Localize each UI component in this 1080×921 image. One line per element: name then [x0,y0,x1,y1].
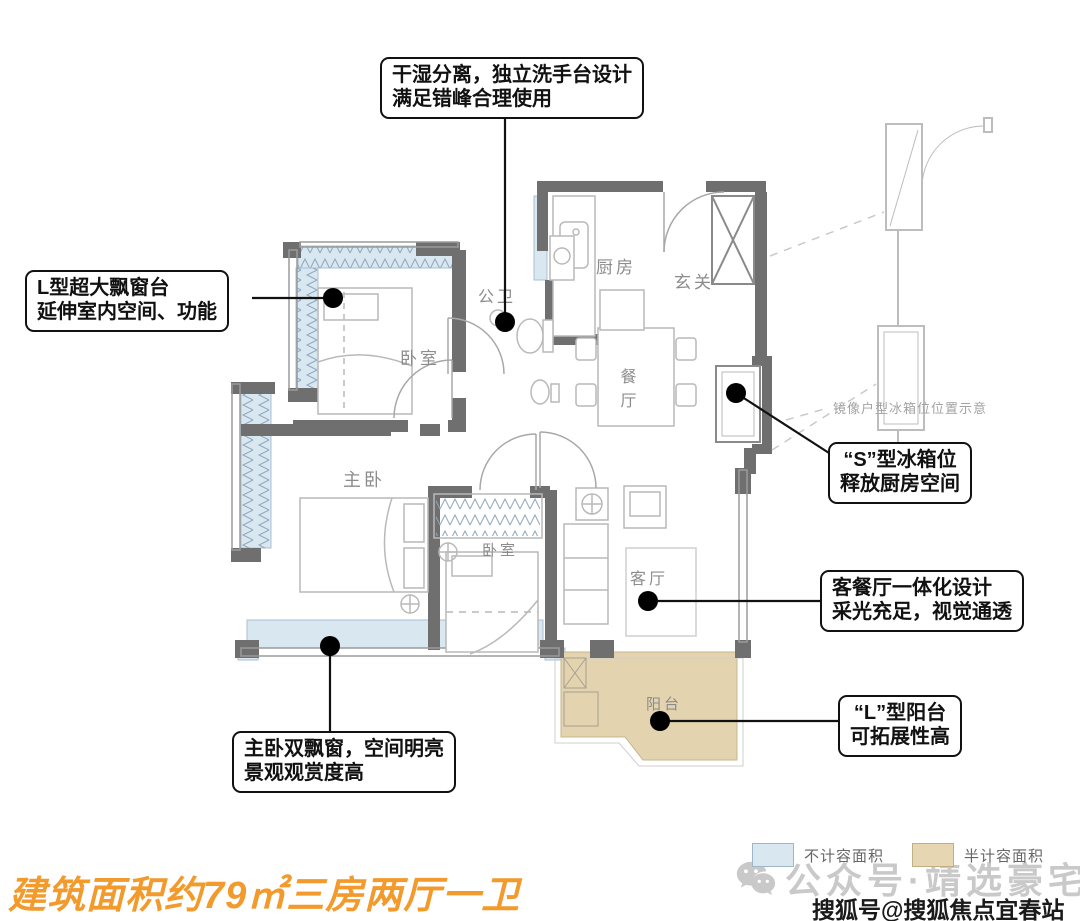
callout-washroom-line1: 干湿分离，独立洗手台设计 [392,63,632,87]
callout-balcony-line2: 可拓展性高 [850,725,950,749]
living-furniture [564,486,696,636]
room-label-living: 客厅 [630,570,668,588]
legend-item-non-countable: 不计容面积 [752,843,884,867]
room-label-kitchen: 厨房 [596,258,636,277]
room-label-master: 主卧 [343,470,385,490]
master-furniture [300,498,428,613]
room-label-foyer: 玄关 [674,273,714,292]
legend-swatch-non-countable [752,843,794,867]
callout-balcony: “L”型阳台 可拓展性高 [838,695,962,757]
callout-master-bay-line1: 主卧双飘窗，空间明亮 [244,737,444,761]
callout-living-dining: 客餐厅一体化设计 采光充足，视觉通透 [820,570,1024,632]
bedroom2-furniture [434,494,542,654]
legend-swatch-half-countable [912,843,954,867]
callout-fridge-line2: 释放厨房空间 [840,472,960,496]
shaft-box [712,196,754,284]
callout-washroom-line2: 满足错峰合理使用 [392,87,632,111]
room-label-bedroom1: 卧室 [400,349,440,368]
legend-label-half-countable: 半计容面积 [964,845,1044,866]
callout-fridge-line1: “S”型冰箱位 [840,448,960,472]
room-label-bathroom: 公卫 [478,289,516,306]
callout-master-bay-line2: 景观观赏度高 [244,761,444,785]
callout-master-bay: 主卧双飘窗，空间明亮 景观观赏度高 [232,731,456,793]
legend-item-half-countable: 半计容面积 [912,843,1044,867]
callout-washroom: 干湿分离，独立洗手台设计 满足错峰合理使用 [380,57,644,119]
sohu-watermark: 搜狐号@搜狐焦点宜春站 [812,891,1064,921]
callout-bay-window-line1: L型超大飘窗台 [37,276,217,300]
callout-living-dining-line2: 采光充足，视觉通透 [832,600,1012,624]
room-label-bedroom2: 卧室 [482,542,518,559]
legend-label-non-countable: 不计容面积 [804,845,884,866]
callout-bay-window-line2: 延伸室内空间、功能 [37,300,217,324]
callout-living-dining-line1: 客餐厅一体化设计 [832,576,1012,600]
area-legend: 不计容面积 半计容面积 [752,843,1044,867]
mirror-note-text: 镜像户型冰箱位位置示意 [833,401,987,416]
room-label-dining-2: 厅 [620,393,639,410]
callout-fridge: “S”型冰箱位 释放厨房空间 [828,442,972,504]
room-label-dining-1: 餐 [620,368,639,386]
callout-balcony-line1: “L”型阳台 [850,701,950,725]
floorplan-page: 卧室 公卫 厨房 玄关 餐 厅 主卧 卧室 客厅 阳台 镜像户型冰箱位位置示意 [0,0,1080,921]
page-title: 建筑面积约79㎡三房两厅一卫 [8,864,520,919]
callout-bay-window: L型超大飘窗台 延伸室内空间、功能 [25,270,229,332]
room-label-balcony: 阳台 [646,696,682,713]
